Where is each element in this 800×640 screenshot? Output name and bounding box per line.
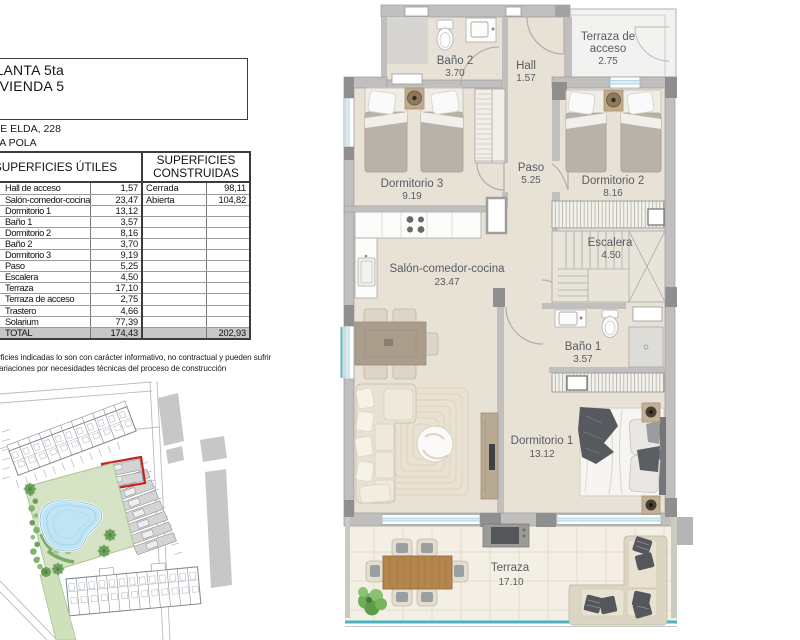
svg-text:17.10: 17.10: [498, 577, 523, 588]
svg-text:Paso: Paso: [518, 162, 544, 174]
svg-text:Escalera: Escalera: [588, 237, 633, 249]
svg-text:9.19: 9.19: [402, 191, 422, 202]
svg-text:23.47: 23.47: [434, 277, 459, 288]
svg-text:Terraza: Terraza: [491, 562, 530, 574]
svg-text:2.75: 2.75: [598, 56, 618, 67]
svg-text:Terraza de: Terraza de: [581, 31, 635, 43]
svg-text:13.12: 13.12: [529, 449, 554, 460]
svg-text:5.25: 5.25: [521, 175, 541, 186]
svg-text:Baño 1: Baño 1: [565, 341, 601, 353]
svg-text:Dormitorio 2: Dormitorio 2: [582, 175, 645, 187]
svg-text:8.16: 8.16: [603, 188, 623, 199]
svg-text:Dormitorio 1: Dormitorio 1: [511, 435, 574, 447]
svg-text:3.70: 3.70: [445, 68, 465, 79]
svg-text:Baño 2: Baño 2: [437, 55, 473, 67]
svg-text:1.57: 1.57: [516, 73, 536, 84]
svg-text:Salón-comedor-cocina: Salón-comedor-cocina: [389, 263, 505, 275]
svg-text:4.50: 4.50: [601, 250, 621, 261]
svg-text:Dormitorio 3: Dormitorio 3: [381, 178, 444, 190]
svg-text:Hall: Hall: [516, 60, 536, 72]
svg-text:3.57: 3.57: [573, 354, 593, 365]
svg-text:acceso: acceso: [590, 43, 626, 55]
